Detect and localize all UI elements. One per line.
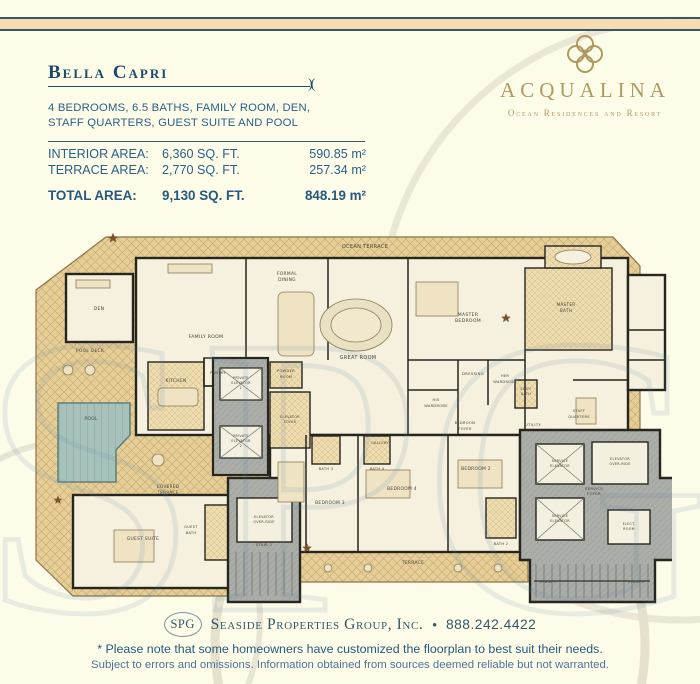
unit-features-line2: STAFF QUARTERS, GUEST SUITE AND POOL [48, 116, 378, 131]
total-area-label: TOTAL AREA: [48, 188, 162, 203]
room-label-service-elev-a-2: ELEVATOR [550, 464, 570, 468]
room-label-private-elev1-2: ELEVATOR [231, 381, 251, 385]
total-area-metric: 848.19 m² [302, 188, 366, 203]
interior-area-label: INTERIOR AREA: [48, 147, 162, 161]
terrace-area-sqft: 2,770 SQ. FT. [162, 163, 302, 177]
floorplan-svg: OCEAN TERRACE DEN FAMILY ROOM FORMAL DIN… [28, 230, 672, 606]
guest-bath-room [205, 505, 230, 560]
bullet-separator: • [432, 617, 437, 632]
quatrefoil-emblem-icon: A [566, 34, 604, 74]
disclaimer-line1: * Please note that some homeowners have … [0, 642, 700, 656]
room-label-private-elev2-1: PRIVATE [233, 434, 249, 438]
total-area-sqft: 9,130 SQ. FT. [162, 188, 302, 203]
room-label-den: DEN [94, 306, 105, 312]
bed3-icon [278, 462, 304, 502]
room-label-service-elev-a-1: SERVICE [552, 459, 568, 463]
spg-logo: SPG [164, 612, 202, 637]
room-label-override-right-2: OVER-RIDE [609, 462, 630, 466]
room-label-his-wardrobe-2: WARDROBE [424, 404, 448, 408]
table-row-interior: INTERIOR AREA: 6,360 SQ. FT. 590.85 m² [48, 147, 366, 161]
room-label-guest-bath-1: GUEST [184, 525, 198, 529]
room-label-elevator-foyer-1: ELEVATOR [280, 415, 300, 419]
room-label-bath-2: BATH 2 [494, 542, 509, 546]
room-label-gallery: GALLERY [371, 441, 390, 445]
room-label-bath-3: BATH 3 [319, 467, 334, 471]
room-label-elect-2: ROOM [623, 527, 635, 531]
kitchen-island-icon [158, 388, 198, 406]
page-title: Bella Capri [48, 62, 168, 84]
room-label-guest-suite: GUEST SUITE [127, 536, 159, 542]
room-label-terrace: TERRACE [401, 560, 424, 566]
room-label-override-right-1: ELEVATOR [610, 457, 630, 461]
room-label-dressing: DRESSING [462, 371, 484, 376]
brand-name: ACQUALINA [478, 78, 692, 103]
room-label-service-elev-b-2: ELEVATOR [550, 519, 570, 523]
room-label-service-foyer-2: FOYER [587, 491, 601, 496]
room-label-great-room: GREAT ROOM [340, 355, 377, 361]
room-label-formal-dining-1: FORMAL [277, 271, 297, 277]
footer-company-line: SPG Seaside Properties Group, Inc. • 888… [0, 612, 700, 637]
disclaimer-line2: Subject to errors and omissions. Informa… [0, 659, 700, 671]
company-name: Seaside Properties Group, Inc. [211, 616, 424, 634]
title-underline [48, 86, 310, 87]
room-label-covered-terrace-1: COVERED [157, 484, 180, 489]
bed2-icon [458, 460, 502, 488]
bed4-icon [366, 470, 410, 498]
room-label-staff-quarters-1: STAFF [573, 409, 585, 413]
room-label-master-bedroom-1: MASTER [458, 312, 479, 318]
room-label-formal-dining-2: DINING [278, 277, 296, 283]
acqualina-logo: A ACQUALINA Ocean Residences and Resort [478, 34, 692, 118]
brand-tagline: Ocean Residences and Resort [478, 108, 692, 118]
room-label-private-elev2-3: 2 [240, 444, 242, 448]
whirlpool-tub-icon [555, 250, 591, 264]
room-label-private-elev1-3: 1 [240, 386, 242, 390]
family-sofa-icon [168, 264, 212, 273]
den-sofa-icon [76, 280, 110, 288]
room-label-elect-1: ELECT. [623, 522, 636, 526]
room-label-master-bath-1: MASTER [556, 302, 575, 307]
room-label-stair-3: STAIR 3 [540, 579, 557, 584]
room-label-elevator-foyer-2: FOYER [284, 420, 297, 424]
room-label-master-bedroom-2: BEDROOM [455, 318, 481, 324]
room-label-pool-deck: POOL DECK [76, 348, 104, 354]
interior-area-metric: 590.85 m² [302, 147, 366, 161]
guest-bed-icon [114, 530, 154, 562]
room-label-override-left-2: OVER-RIDE [253, 520, 274, 524]
room-label-bedroom-3: BEDROOM 3 [315, 500, 345, 506]
room-label-override-left-1: ELEVATOR [254, 515, 274, 519]
table-row-total: TOTAL AREA: 9,130 SQ. FT. 848.19 m² [48, 188, 366, 203]
room-label-bedroom-foyer-1: BEDROOM [455, 421, 476, 425]
title-end-flourish-icon: )( [308, 77, 313, 93]
room-label-guest-bath-2: BATH [186, 531, 197, 535]
terrace-area-label: TERRACE AREA: [48, 163, 162, 177]
unit-features-text: 4 BEDROOMS, 6.5 BATHS, FAMILY ROOM, DEN,… [48, 101, 378, 131]
room-label-service-elev-b-1: SERVICE [552, 514, 568, 518]
area-table: INTERIOR AREA: 6,360 SQ. FT. 590.85 m² T… [48, 147, 366, 203]
bath2-room [486, 498, 516, 538]
phone-number: 888.242.4422 [446, 617, 536, 632]
room-label-bedroom-2: BEDROOM 2 [461, 466, 491, 472]
room-label-covered-terrace-2: TERRACE [156, 490, 178, 495]
unit-features-line1: 4 BEDROOMS, 6.5 BATHS, FAMILY ROOM, DEN, [48, 101, 378, 116]
master-bed-icon [416, 282, 458, 316]
room-label-kitchen: KITCHEN [165, 378, 186, 384]
service-core-block [520, 430, 672, 602]
east-rooms-block [628, 275, 665, 390]
room-label-powder-1: POWDER [277, 369, 295, 373]
room-label-stair-4: STAIR 4 [628, 579, 645, 584]
room-label-pantry: PANTRY [210, 371, 226, 375]
room-label-utility: UTILITY [525, 422, 542, 427]
room-label-master-bath-2: BATH [560, 308, 572, 313]
interior-area-sqft: 6,360 SQ. FT. [162, 147, 302, 161]
room-label-her-wardrobe-2: WARDROBE [493, 380, 517, 384]
table-row-terrace: TERRACE AREA: 2,770 SQ. FT. 257.34 m² [48, 163, 366, 177]
room-label-her-wardrobe-1: HER [501, 374, 510, 378]
room-label-bedroom-4: BEDROOM 4 [387, 486, 417, 492]
room-label-private-elev1-1: PRIVATE [233, 376, 249, 380]
room-label-powder-2: ROOM [280, 375, 292, 379]
room-label-pool: POOL [84, 416, 97, 422]
room-label-bath-4: BATH 4 [370, 467, 385, 471]
bath3-room [312, 436, 340, 464]
terrace-area-metric: 257.34 m² [302, 163, 366, 177]
room-label-staff-quarters-2: QUARTERS [568, 415, 590, 419]
room-label-stair-2: STAIR 2 [256, 542, 273, 547]
room-label-staff-bath-1: STAFF [520, 387, 531, 391]
area-table-rule [48, 141, 365, 142]
emblem-monogram: A [580, 46, 590, 61]
room-label-family-room: FAMILY ROOM [189, 334, 224, 340]
room-label-his-wardrobe-1: HIS [433, 398, 440, 402]
room-label-ocean-terrace: OCEAN TERRACE [342, 244, 388, 250]
header-accent-band [0, 17, 700, 31]
room-label-staff-bath-2: BATH [521, 392, 531, 396]
room-label-private-elev2-2: ELEVATOR [231, 439, 251, 443]
room-label-bedroom-foyer-2: FOYER [458, 427, 471, 431]
dining-table-icon [278, 292, 314, 356]
